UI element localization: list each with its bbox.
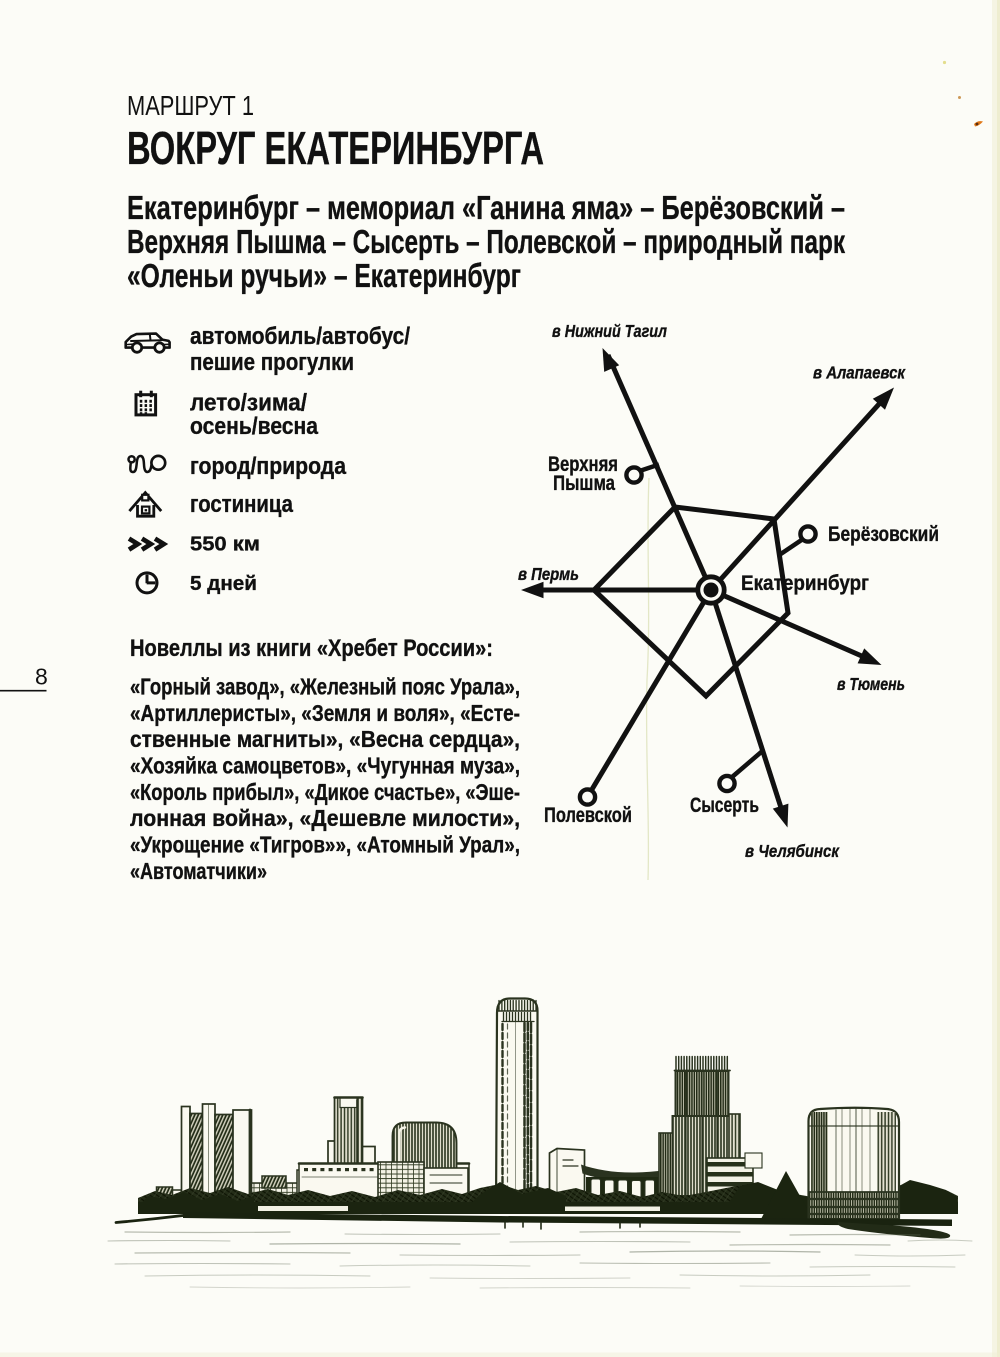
- svg-text:автомобиль/автобус/: автомобиль/автобус/: [190, 323, 410, 350]
- svg-text:5 дней: 5 дней: [190, 572, 257, 595]
- svg-text:«Хозяйка самоцветов», «Чугунна: «Хозяйка самоцветов», «Чугунная муза»,: [130, 753, 520, 779]
- svg-text:«Автоматчики»: «Автоматчики»: [130, 858, 267, 884]
- svg-text:Верхняя Пышма – Сысерть – Поле: Верхняя Пышма – Сысерть – Полевской – пр…: [127, 223, 845, 260]
- svg-text:8: 8: [35, 664, 48, 690]
- svg-text:Пышма: Пышма: [553, 472, 615, 495]
- svg-text:в Тюмень: в Тюмень: [837, 674, 905, 694]
- svg-text:Екатеринбург – мемориал «Ганин: Екатеринбург – мемориал «Ганина яма» – Б…: [127, 189, 845, 226]
- svg-text:лонная война», «Дешевле милост: лонная война», «Дешевле милости»,: [130, 805, 520, 831]
- svg-text:осень/весна: осень/весна: [190, 413, 319, 440]
- svg-text:Екатеринбург: Екатеринбург: [741, 572, 869, 595]
- svg-text:Новеллы из книги «Хребет Росси: Новеллы из книги «Хребет России»:: [130, 635, 493, 662]
- svg-text:в Нижний Тагил: в Нижний Тагил: [552, 321, 667, 341]
- svg-text:в Алапаевск: в Алапаевск: [813, 363, 906, 383]
- svg-text:Полевской: Полевской: [544, 804, 632, 827]
- svg-text:ВОКРУГ ЕКАТЕРИНБУРГА: ВОКРУГ ЕКАТЕРИНБУРГА: [127, 122, 544, 174]
- svg-text:«Оленьи ручьи» – Екатеринбург: «Оленьи ручьи» – Екатеринбург: [127, 257, 521, 294]
- svg-text:«Король прибыл», «Дикое счасть: «Король прибыл», «Дикое счастье», «Эше-: [130, 779, 520, 805]
- svg-text:город/природа: город/природа: [190, 453, 347, 480]
- svg-text:«Горный завод», «Железный пояс: «Горный завод», «Железный пояс Урала»,: [130, 674, 520, 700]
- svg-text:«Артиллеристы», «Земля и воля»: «Артиллеристы», «Земля и воля», «Есте-: [130, 700, 520, 726]
- svg-text:в Пермь: в Пермь: [518, 564, 579, 584]
- svg-text:ственные магниты», «Весна серд: ственные магниты», «Весна сердца»,: [130, 726, 520, 752]
- svg-text:в Челябинск: в Челябинск: [745, 841, 840, 861]
- svg-text:гостиница: гостиница: [190, 491, 294, 518]
- svg-text:«Укрощение «Тигров»», «Атомный: «Укрощение «Тигров»», «Атомный Урал»,: [130, 832, 520, 858]
- svg-text:пешие прогулки: пешие прогулки: [190, 349, 354, 376]
- svg-text:550 км: 550 км: [190, 532, 260, 555]
- svg-text:МАРШРУТ 1: МАРШРУТ 1: [127, 90, 254, 121]
- svg-text:Сысерть: Сысерть: [690, 794, 759, 817]
- svg-text:Берёзовский: Берёзовский: [828, 523, 939, 546]
